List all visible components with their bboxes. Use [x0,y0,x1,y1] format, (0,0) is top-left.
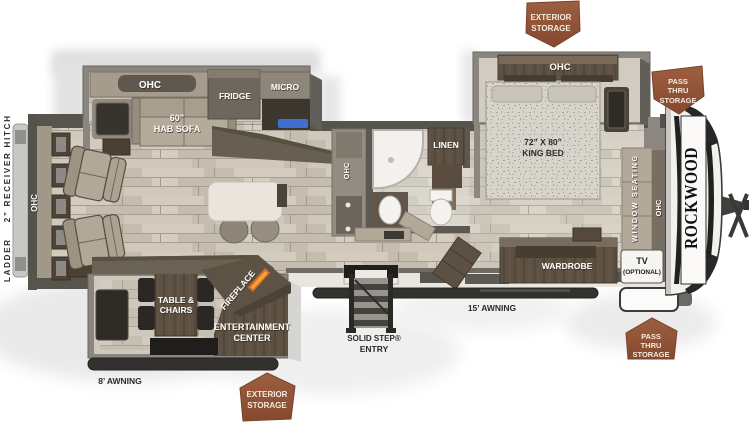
svg-text:CENTER: CENTER [233,333,271,343]
svg-text:EXTERIOR: EXTERIOR [247,390,288,399]
svg-text:PASS: PASS [668,77,688,86]
svg-text:STORAGE: STORAGE [660,96,697,105]
svg-text:STORAGE: STORAGE [633,350,670,359]
svg-text:THRU: THRU [668,86,689,95]
svg-text:72” X 80”: 72” X 80” [524,137,562,147]
svg-text:15’ AWNING: 15’ AWNING [468,303,517,313]
svg-text:OHC: OHC [342,162,351,179]
svg-text:PASS: PASS [641,332,661,341]
svg-text:TABLE &: TABLE & [158,295,194,305]
svg-text:CHAIRS: CHAIRS [160,305,193,315]
svg-text:60”: 60” [170,113,185,123]
svg-text:OHC: OHC [549,62,570,73]
svg-text:ENTERTAINMENT: ENTERTAINMENT [214,322,291,332]
svg-text:WARDROBE: WARDROBE [542,261,593,271]
svg-text:MICRO: MICRO [271,82,300,92]
svg-text:STORAGE: STORAGE [247,401,287,410]
svg-text:ENTRY: ENTRY [360,344,389,354]
svg-text:EXTERIOR: EXTERIOR [531,13,572,22]
svg-text:KING BED: KING BED [522,148,564,158]
svg-text:SOLID STEP®: SOLID STEP® [347,334,401,343]
svg-text:LADDER 2” RECEIVER HITCH: LADDER 2” RECEIVER HITCH [3,116,12,282]
svg-text:HAB SOFA: HAB SOFA [154,124,201,134]
svg-text:FRIDGE: FRIDGE [219,91,251,101]
svg-text:ROCKWOOD: ROCKWOOD [681,147,701,249]
svg-text:STORAGE: STORAGE [531,24,571,33]
svg-text:OHC: OHC [654,199,663,216]
svg-text:LINEN: LINEN [433,140,459,150]
svg-text:(OPTIONAL): (OPTIONAL) [623,269,661,276]
svg-text:OHC: OHC [30,194,39,212]
svg-text:THRU: THRU [641,341,662,350]
svg-text:OHC: OHC [139,80,161,91]
svg-text:TV: TV [636,256,648,266]
svg-text:8’ AWNING: 8’ AWNING [98,376,142,386]
